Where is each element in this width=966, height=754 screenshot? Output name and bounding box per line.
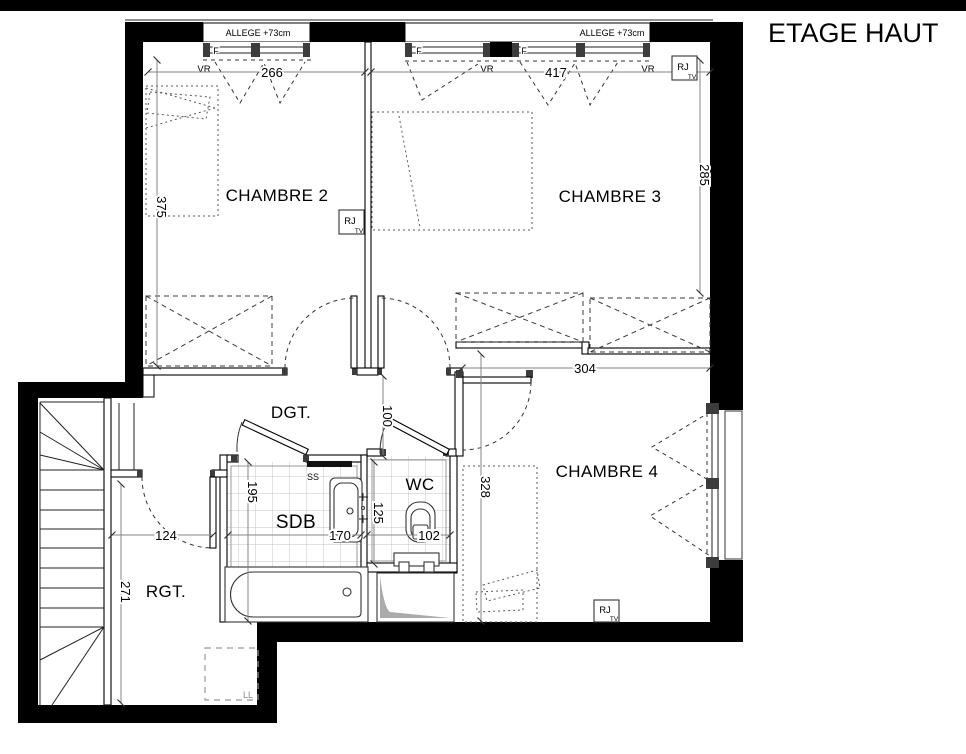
vr-label-2: VR (480, 64, 493, 75)
vr-curtain-symbol-2 (407, 62, 478, 100)
washing-machine-label: LL (243, 690, 253, 700)
door-swing-chambre2 (285, 298, 355, 368)
stair-head-niche (143, 375, 154, 397)
fenetre-label-3: F (521, 46, 527, 56)
bed-chambre4 (463, 466, 537, 622)
dim-wc-width: 102 (418, 528, 440, 543)
window-chambre4 (650, 403, 743, 568)
dim-chambre4-depth: 328 (478, 476, 493, 498)
door-leaf-wc (388, 418, 449, 454)
tv-label-3: TV (610, 616, 619, 623)
tv-label-1: TV (688, 74, 697, 81)
casement-swing-upper (652, 412, 710, 481)
rj-label-2: RJ (344, 216, 356, 227)
label-chambre2: CHAMBRE 2 (226, 186, 329, 205)
label-degagement: DGT. (271, 403, 311, 422)
allege-label-2: ALLEGE +73cm (580, 28, 645, 38)
pillow-chambre2 (147, 92, 210, 119)
door-leaf-chambre2 (351, 296, 357, 368)
dim-chambre4-width: 304 (574, 361, 596, 376)
dim-sdb-depth: 195 (245, 481, 260, 503)
tv-label-2: TV (355, 228, 364, 235)
shower-corner-unit (377, 573, 454, 622)
vr-curtain-symbol-1 (215, 62, 305, 103)
vr-label-3: VR (641, 64, 654, 75)
fenetre-label-1: F (213, 46, 219, 56)
casement-swing-lower (650, 481, 710, 556)
vr-curtain-symbol-3 (520, 62, 618, 105)
floor-plan-drawing: ALLEGE +73cm F VR ALLEGE +73cm (0, 0, 966, 754)
dim-rangement-depth: 271 (118, 581, 133, 603)
label-sdb: SDB (276, 512, 316, 533)
floor-plan-page: ALLEGE +73cm F VR ALLEGE +73cm (0, 0, 966, 754)
window-chambre3: ALLEGE +73cm F F VR VR (405, 23, 655, 105)
towel-dryer-label: SS (307, 472, 319, 482)
washing-machine: LL (205, 648, 258, 700)
wardrobe-chambre3-left (456, 293, 583, 342)
sheet-edge-band (0, 0, 966, 11)
dim-chambre3-depth: 285 (697, 164, 712, 186)
wardrobe-chambre2 (146, 296, 272, 366)
dim-sdb-width: 170 (329, 528, 351, 543)
door-swing-chambre4 (463, 382, 531, 450)
label-chambre3: CHAMBRE 3 (559, 187, 662, 206)
label-wc: WC (405, 475, 434, 494)
door-swing-sdb (237, 422, 242, 452)
dim-degagement-width: 100 (380, 405, 395, 427)
dim-wc-depth: 125 (371, 502, 386, 524)
dim-chambre2-width: 266 (261, 65, 283, 80)
rj-label-3: RJ (599, 605, 611, 616)
pillow-chambre4-b (476, 590, 523, 612)
rj-label-1: RJ (677, 62, 689, 73)
door-swing-chambre3 (380, 298, 450, 368)
door-leaf-sdb (242, 420, 308, 455)
rj-tv-outlet-chambre4: RJ TV (594, 600, 619, 623)
staircase (40, 402, 104, 705)
window-chambre2: ALLEGE +73cm F VR (197, 23, 312, 103)
door-leaf-rangement (210, 477, 216, 548)
bed-chambre3 (372, 112, 532, 230)
label-rangement: RGT. (146, 582, 186, 601)
pillow-chambre4-a (483, 570, 540, 601)
rj-tv-outlet-top: RJ TV (672, 56, 697, 81)
vr-label-1: VR (197, 64, 210, 75)
fenetre-label-2: F (416, 46, 422, 56)
dim-chambre3-width: 417 (545, 65, 567, 80)
door-leaf-chambre3 (378, 296, 384, 368)
rj-tv-outlet-chambre2: RJ TV (339, 210, 364, 235)
label-chambre4: CHAMBRE 4 (556, 462, 659, 481)
page-title: ETAGE HAUT (768, 18, 939, 48)
door-swing-rangement (142, 477, 213, 548)
bathtub (225, 567, 368, 622)
dim-rangement-width: 124 (155, 528, 177, 543)
wardrobe-chambre3-right (590, 298, 710, 352)
allege-label-1: ALLEGE +73cm (226, 28, 291, 38)
door-leaf-chambre4 (463, 377, 531, 383)
dim-chambre2-depth: 375 (154, 196, 169, 218)
